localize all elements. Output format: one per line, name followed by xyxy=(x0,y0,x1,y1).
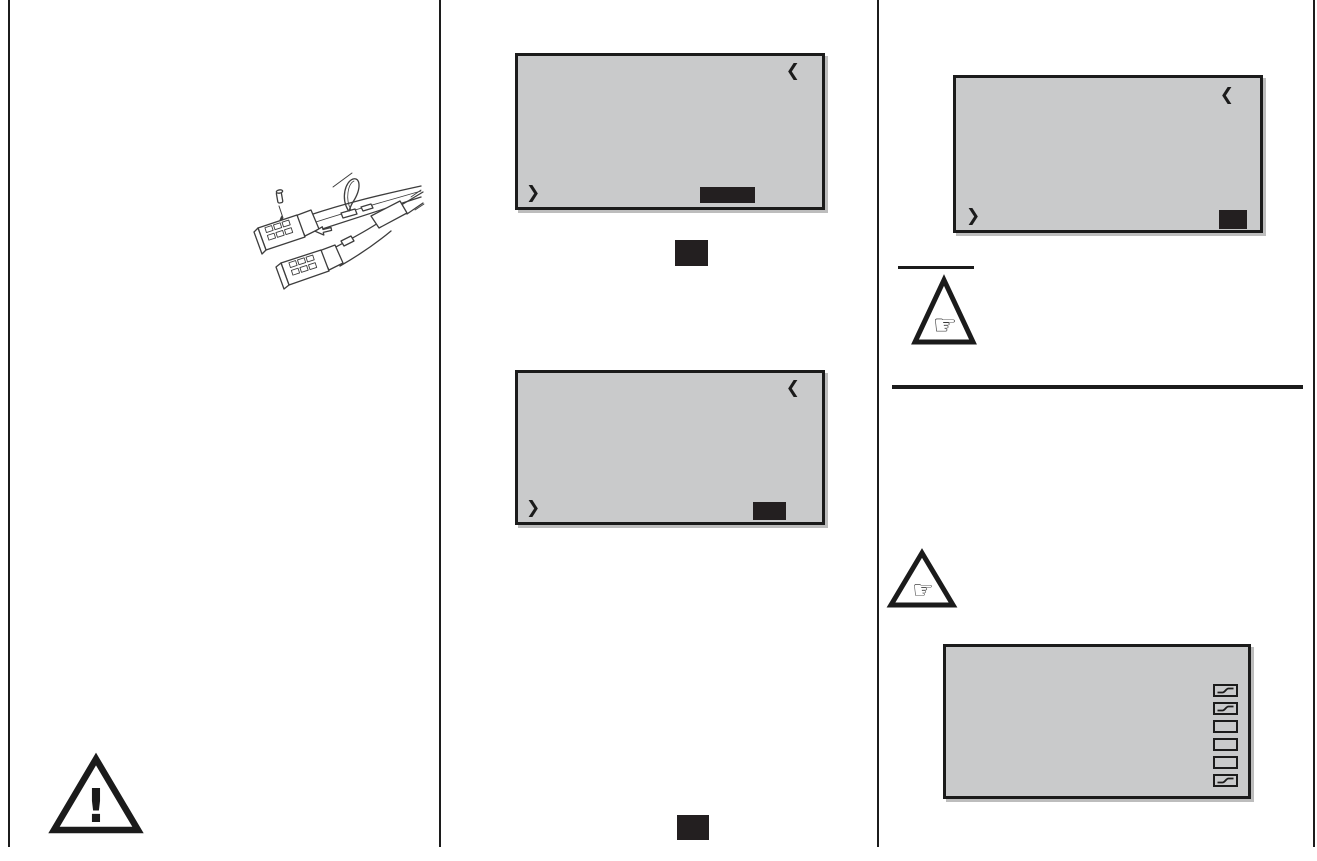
column-divider-2 xyxy=(877,0,879,847)
softkey-placeholder xyxy=(753,502,786,520)
function-key-placeholder xyxy=(677,815,709,840)
chevron-left-icon: ❮ xyxy=(1220,87,1234,104)
softkey-placeholder xyxy=(700,187,755,203)
curve-type-icon xyxy=(1213,774,1238,787)
curve-icon-column xyxy=(1213,684,1238,787)
lcd-screen-curve-list xyxy=(943,644,1251,799)
servo-cable-illustration xyxy=(253,170,425,298)
chevron-right-icon: ❯ xyxy=(526,185,540,202)
note-triangle-2: ☞ xyxy=(888,550,956,608)
column-divider-1 xyxy=(439,0,441,847)
lcd-screen-2: ❮ ❯ xyxy=(515,370,825,525)
curve-type-icon xyxy=(1213,720,1238,733)
warning-triangle-icon: ! xyxy=(50,754,142,834)
chevron-left-icon: ❮ xyxy=(786,380,800,397)
note-overline xyxy=(898,266,974,269)
note-triangle-1: ☞ xyxy=(912,276,976,345)
curve-type-icon xyxy=(1213,756,1238,769)
page-right-rule xyxy=(1313,0,1315,847)
pointing-hand-icon: ☞ xyxy=(912,576,934,604)
chevron-right-icon: ❯ xyxy=(966,208,980,225)
note-triangle-icon: ☞ xyxy=(888,550,956,608)
softkey-placeholder xyxy=(1219,210,1247,229)
page-left-rule xyxy=(8,0,10,847)
chevron-right-icon: ❯ xyxy=(526,500,540,517)
lcd-screen-1: ❮ ❯ xyxy=(515,53,825,210)
function-key-placeholder xyxy=(675,240,708,266)
pointing-hand-icon: ☞ xyxy=(933,310,957,341)
curve-type-icon xyxy=(1213,738,1238,751)
curve-type-icon xyxy=(1213,702,1238,715)
section-divider-rule xyxy=(892,385,1303,389)
curve-type-icon xyxy=(1213,684,1238,697)
lcd-screen-3: ❮ ❯ xyxy=(953,75,1263,233)
note-triangle-icon: ☞ xyxy=(912,276,976,345)
chevron-left-icon: ❮ xyxy=(786,63,800,80)
manual-page: ! ❮ ❯ ❮ ❯ ❮ ❯ ☞ ☞ xyxy=(0,0,1317,861)
warning-triangle: ! xyxy=(50,754,142,834)
exclamation-mark-icon: ! xyxy=(86,779,107,833)
